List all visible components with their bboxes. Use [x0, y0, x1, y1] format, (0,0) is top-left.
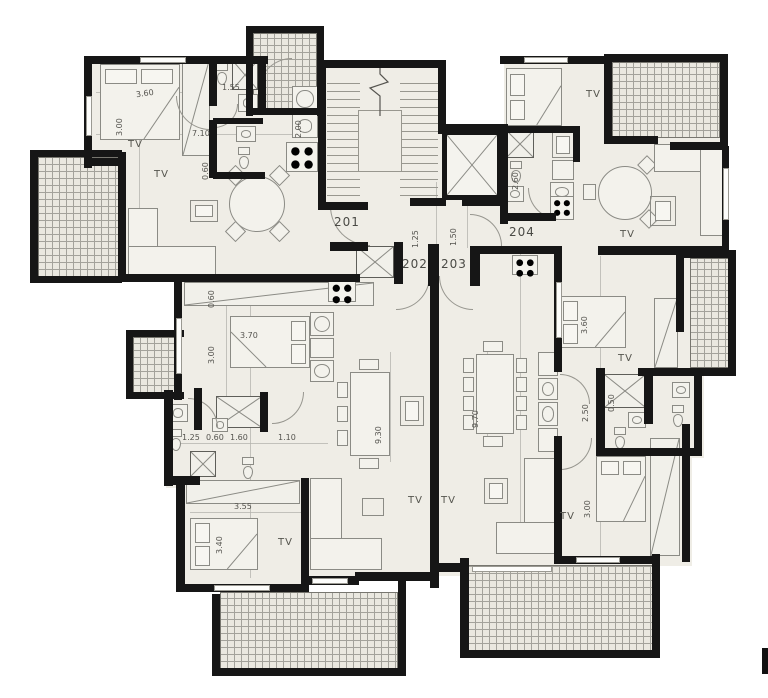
dining-table — [476, 354, 514, 434]
wall — [438, 60, 446, 134]
coffee-table — [190, 200, 218, 222]
dimension-label: 3.00 — [116, 118, 124, 136]
wall — [30, 276, 122, 283]
wall — [470, 248, 480, 286]
chair — [583, 184, 596, 200]
window — [86, 96, 92, 136]
wall — [728, 250, 736, 376]
dining-table — [350, 372, 390, 456]
bathroom-sink — [672, 382, 690, 398]
elevator-shaft — [442, 130, 502, 200]
wall — [604, 54, 728, 62]
chair — [337, 382, 348, 398]
bed — [596, 456, 646, 522]
stove — [286, 142, 318, 172]
dimension-label: 0.50 — [608, 394, 616, 412]
tv-label: TV — [560, 512, 575, 522]
wall — [554, 436, 562, 564]
legend-mark — [762, 648, 768, 674]
wall — [460, 558, 469, 658]
wall — [652, 554, 660, 658]
chair — [483, 341, 503, 352]
bed — [558, 296, 626, 348]
chair — [463, 377, 474, 392]
window — [576, 557, 620, 563]
wall — [30, 150, 122, 157]
wall — [460, 650, 660, 658]
dimension-label: 3.00 — [584, 500, 592, 518]
chair — [463, 358, 474, 373]
wall — [212, 594, 220, 676]
wall — [260, 392, 268, 432]
dimension-label: 1.25 — [182, 434, 200, 442]
chair — [359, 458, 379, 469]
stair-steps — [327, 76, 360, 202]
toilet — [236, 146, 252, 170]
washing-machine — [310, 360, 334, 382]
wall — [694, 372, 702, 456]
dimension-label: 2.00 — [295, 120, 303, 138]
unit-label-203: 203 — [441, 258, 467, 270]
dimension-label: 3.55 — [234, 503, 252, 511]
tv-label: TV — [620, 230, 635, 240]
wall — [118, 274, 360, 282]
balcony-left-mid — [133, 337, 179, 393]
toilet — [612, 426, 628, 450]
stair-landing — [358, 110, 402, 172]
side-table — [362, 498, 384, 516]
kitchen-counter — [310, 338, 334, 358]
washing-machine — [538, 402, 558, 426]
wall — [670, 142, 728, 150]
wardrobe — [186, 480, 300, 504]
fridge — [552, 132, 574, 158]
stair-direction-arrow — [362, 66, 398, 118]
window — [176, 318, 182, 374]
unit-label-202: 202 — [402, 258, 428, 270]
wall — [126, 330, 133, 398]
chair — [516, 396, 527, 411]
window — [214, 585, 270, 591]
dimension-label: 1.60 — [230, 434, 248, 442]
dimension-line — [168, 443, 328, 444]
wall — [209, 56, 217, 106]
dimension-line — [390, 352, 391, 462]
wall — [500, 213, 556, 221]
chair — [463, 396, 474, 411]
window — [524, 57, 568, 63]
tv-label: TV — [441, 496, 456, 506]
wall — [326, 202, 368, 210]
chair — [337, 430, 348, 446]
stove — [328, 280, 356, 302]
bathroom-sink — [236, 126, 256, 142]
wall — [604, 54, 612, 144]
dimension-label: 1.10 — [278, 434, 296, 442]
window — [723, 168, 729, 220]
window — [312, 578, 348, 584]
sofa — [496, 522, 556, 554]
wall — [213, 118, 263, 124]
wall — [330, 242, 368, 251]
window — [472, 566, 552, 572]
balcony-bottom-left — [220, 592, 398, 669]
chair — [516, 358, 527, 373]
chair — [337, 406, 348, 422]
dimension-label: 0.60 — [208, 290, 216, 308]
wall — [573, 126, 580, 162]
wall — [500, 246, 558, 254]
dimension-label: 7.10 — [192, 130, 210, 138]
wall — [355, 572, 439, 581]
wall — [430, 244, 439, 578]
toilet — [240, 456, 256, 480]
balcony-right — [690, 258, 730, 368]
wardrobe — [654, 298, 678, 368]
wall — [596, 368, 605, 456]
dimension-label: 3.70 — [240, 332, 258, 340]
tv-label: TV — [278, 538, 293, 548]
dimension-label: 9.70 — [472, 410, 480, 428]
wall — [246, 26, 253, 116]
dimension-label: 1.25 — [412, 230, 420, 248]
dimension-label: 3.60 — [581, 316, 589, 334]
window — [556, 282, 562, 338]
wall — [720, 54, 728, 150]
dimension-line — [190, 512, 308, 513]
wall — [176, 482, 185, 592]
shower — [506, 130, 534, 158]
wall — [252, 108, 326, 115]
unit-label-204: 204 — [509, 226, 535, 238]
wall — [213, 172, 265, 179]
tv-label: TV — [586, 90, 601, 100]
stove — [512, 255, 538, 275]
coffee-table — [650, 196, 676, 226]
wall — [194, 388, 202, 430]
dimension-label: 3.40 — [216, 536, 224, 554]
wall — [608, 136, 658, 144]
window — [140, 57, 186, 63]
wall — [318, 60, 446, 68]
dimension-label: 2.60 — [512, 172, 520, 190]
wall — [118, 152, 126, 282]
wall — [676, 250, 684, 332]
chair — [483, 436, 503, 447]
shower — [190, 451, 216, 477]
wall — [164, 390, 173, 486]
wall — [682, 424, 690, 562]
wall — [500, 126, 580, 133]
chair — [516, 377, 527, 392]
wall — [644, 368, 653, 424]
balcony-top-right — [612, 62, 720, 138]
dimension-label: 0.60 — [206, 434, 224, 442]
stair-steps — [400, 76, 438, 198]
wall — [410, 198, 446, 206]
wall — [398, 580, 406, 676]
dining-table-round — [598, 166, 652, 220]
dimension-label: 0.60 — [202, 162, 210, 180]
unit-label-201: 201 — [334, 216, 360, 228]
tv-label: TV — [618, 354, 633, 364]
bed — [230, 316, 310, 368]
dimension-label: 1.50 — [450, 228, 458, 246]
sofa — [310, 538, 382, 570]
chair — [359, 359, 379, 370]
tv-stand — [400, 396, 424, 426]
tv-label: TV — [154, 170, 169, 180]
wall — [126, 392, 184, 399]
dimension-label: 2.50 — [582, 404, 590, 422]
floor-plan-canvas: 201 202 203 204 TV TV TV TV TV TV TV TV … — [0, 0, 768, 698]
wall — [30, 150, 38, 282]
tv-label: TV — [408, 496, 423, 506]
wall — [258, 56, 266, 112]
bed — [100, 64, 180, 140]
tv-label: TV — [128, 140, 143, 150]
dimension-label: 1.55 — [222, 84, 240, 92]
wall — [317, 26, 324, 116]
bed — [190, 518, 258, 570]
chair — [516, 415, 527, 430]
dimension-label: 9.30 — [375, 426, 383, 444]
bed — [506, 68, 562, 126]
wall — [301, 478, 309, 590]
coffee-table — [484, 478, 508, 504]
balcony-bottom-right — [468, 565, 654, 651]
wall — [246, 26, 324, 33]
wall — [209, 120, 217, 178]
wall — [212, 668, 406, 676]
round-sink — [310, 312, 334, 336]
balcony-left — [38, 157, 120, 277]
round-sink — [538, 378, 558, 400]
dimension-label: 3.00 — [208, 346, 216, 364]
sofa — [128, 246, 216, 276]
kitchen-counter — [552, 160, 574, 180]
